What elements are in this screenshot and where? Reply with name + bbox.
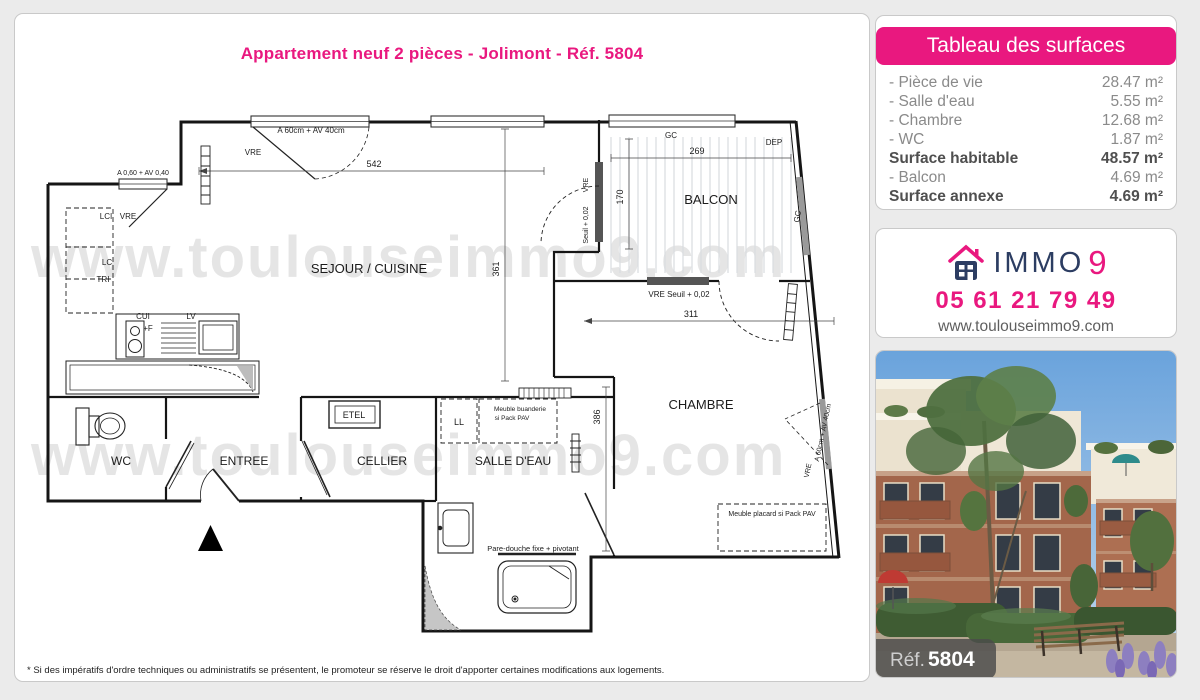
plan-label: VRE — [804, 463, 814, 479]
chambre-window — [647, 277, 709, 285]
plan-label: 170 — [615, 189, 625, 204]
surface-label: - Balcon — [889, 168, 946, 187]
plan-label: 361 — [491, 261, 501, 276]
house-icon — [945, 243, 987, 283]
surface-value: 4.69 m² — [1110, 187, 1163, 206]
surface-value: 4.69 m² — [1110, 168, 1163, 187]
surface-row: - Salle d'eau5.55 m² — [889, 92, 1163, 111]
plan-label: Meuble buanderie — [494, 406, 546, 413]
plan-label: VRE — [120, 212, 136, 221]
entrance-arrow — [198, 525, 223, 551]
plan-label: Meuble placard si Pack PAV — [728, 511, 816, 518]
sejour-balcony-window — [595, 162, 603, 242]
brand-name: IMMO — [993, 247, 1084, 280]
agency-logo: IMMO9 — [876, 243, 1176, 283]
plan-label: DEP — [766, 138, 782, 147]
surface-label: Surface habitable — [889, 149, 1018, 168]
plan-label: Seuil + 0,02 — [583, 206, 590, 243]
ref-label: Réf. — [890, 650, 925, 671]
plan-label: 269 — [689, 146, 704, 156]
wc-fixtures — [76, 408, 125, 445]
dim-arrow — [199, 168, 207, 174]
plan-label: +F — [143, 324, 153, 333]
surface-row: Surface annexe4.69 m² — [889, 187, 1163, 206]
plan-label: SEJOUR / CUISINE — [311, 261, 428, 276]
surface-row: - Chambre12.68 m² — [889, 111, 1163, 130]
plan-label: LCI — [100, 212, 112, 221]
dim-arrow — [584, 318, 592, 324]
kitchen-fixtures — [66, 314, 259, 394]
plan-label: SALLE D'EAU — [475, 454, 551, 468]
plan-label: VRE Seuil + 0,02 — [648, 290, 710, 299]
plan-label: LC — [102, 258, 112, 267]
surface-value: 5.55 m² — [1110, 92, 1163, 111]
plan-label: CUI — [136, 312, 150, 321]
surface-value: 48.57 m² — [1101, 149, 1163, 168]
surface-label: Surface annexe — [889, 187, 1004, 206]
plan-label: Pare-douche fixe + pivotant — [487, 544, 579, 553]
plan-label: ENTREE — [220, 454, 269, 468]
bathroom-fixtures — [438, 503, 576, 613]
building-rendering: Réf. 5804 — [876, 351, 1177, 678]
plan-label: 311 — [684, 309, 698, 319]
surface-value: 28.47 m² — [1102, 73, 1163, 92]
disclaimer-text: * Si des impératifs d'ordre techniques o… — [27, 665, 664, 676]
plan-label: WC — [111, 454, 131, 468]
surface-row: Surface habitable48.57 m² — [889, 149, 1163, 168]
phone-number[interactable]: 05 61 21 79 49 — [876, 287, 1176, 315]
website-link[interactable]: www.toulouseimmo9.com — [876, 318, 1176, 336]
surface-row: - WC1.87 m² — [889, 130, 1163, 149]
surface-row: - Pièce de vie28.47 m² — [889, 73, 1163, 92]
plan-label: CELLIER — [357, 454, 407, 468]
surface-row: - Balcon4.69 m² — [889, 168, 1163, 187]
floorplan-drawing: A 60cm + AV 40cmVRE542A 0,60 + AV 0,40LC… — [39, 107, 869, 667]
floorplan-panel: Appartement neuf 2 pièces - Jolimont - R… — [14, 13, 870, 682]
brand-digit: 9 — [1088, 244, 1106, 282]
surface-label: - Salle d'eau — [889, 92, 975, 111]
surface-label: - Pièce de vie — [889, 73, 983, 92]
surfaces-header: Tableau des surfaces — [876, 27, 1176, 65]
plan-label: A 0,60 + AV 0,40 — [117, 170, 169, 177]
page: Appartement neuf 2 pièces - Jolimont - R… — [0, 0, 1200, 700]
surfaces-card: Tableau des surfaces - Pièce de vie28.47… — [875, 15, 1177, 210]
counter-shade — [237, 366, 253, 391]
plan-label: LV — [186, 312, 196, 321]
surface-label: - Chambre — [889, 111, 962, 130]
surface-label: - WC — [889, 130, 924, 149]
plan-label: 386 — [592, 409, 602, 424]
plan-label: A 60cm + AV 40cm — [277, 126, 345, 135]
plan-label: 542 — [366, 159, 381, 169]
plan-label: si Pack PAV — [495, 415, 530, 422]
surfaces-rows: - Pièce de vie28.47 m²- Salle d'eau5.55 … — [876, 65, 1176, 206]
page-title: Appartement neuf 2 pièces - Jolimont - R… — [15, 44, 869, 64]
agency-card: IMMO9 05 61 21 79 49 www.toulouseimmo9.c… — [875, 228, 1177, 338]
surface-value: 1.87 m² — [1110, 130, 1163, 149]
plan-label: CHAMBRE — [668, 397, 733, 412]
dimension-lines — [199, 129, 834, 551]
windows — [119, 115, 829, 469]
plan-label: TRI — [97, 275, 110, 284]
plan-labels: A 60cm + AV 40cmVRE542A 0,60 + AV 0,40LC… — [97, 126, 834, 553]
plan-label: GC — [665, 131, 677, 140]
plan-label: VRE — [583, 177, 590, 192]
plan-label: LL — [454, 417, 464, 427]
plan-label: ETEL — [343, 410, 366, 420]
plan-label: BALCON — [684, 192, 737, 207]
plan-label: VRE — [245, 148, 261, 157]
property-photo: Réf. 5804 — [875, 350, 1177, 678]
shower-shade — [425, 566, 461, 630]
ref-badge: Réf. 5804 — [876, 639, 996, 678]
ref-number: 5804 — [928, 648, 975, 671]
surface-value: 12.68 m² — [1102, 111, 1163, 130]
